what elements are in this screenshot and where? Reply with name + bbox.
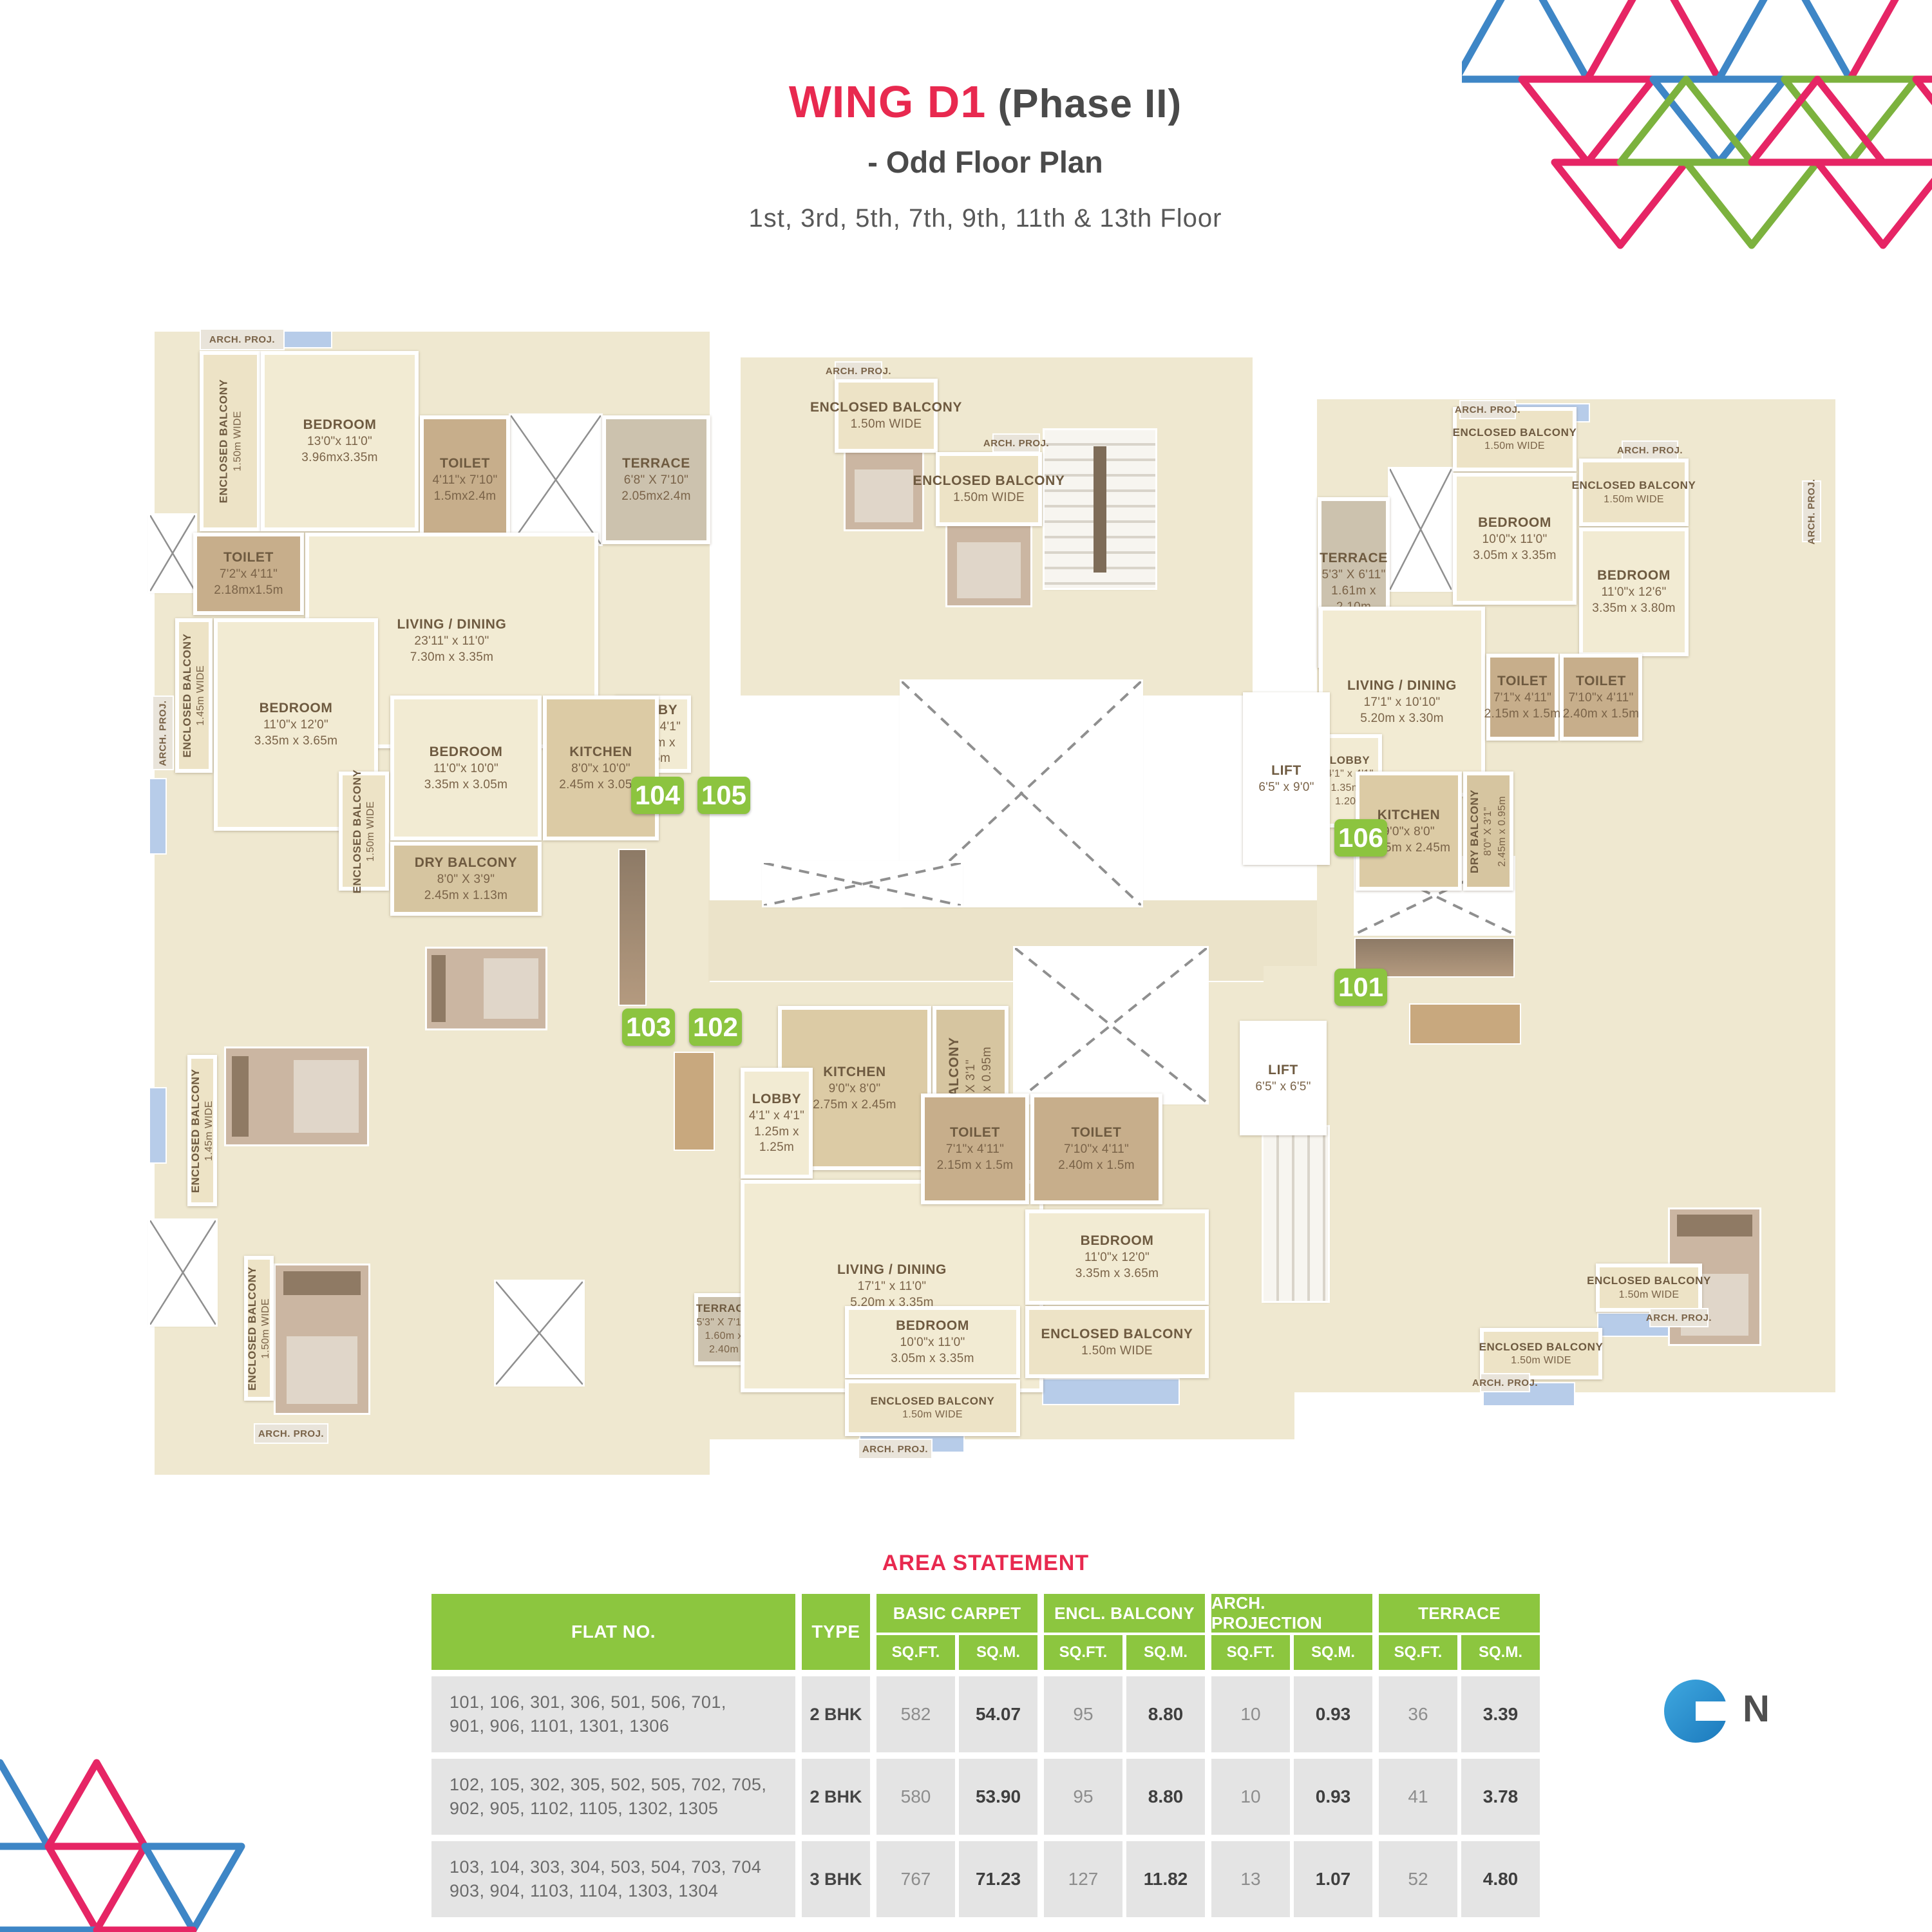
room-label-line: ENCLOSED BALCONY: [217, 379, 230, 504]
room-label-line: 2.05mx2.4m: [621, 489, 691, 504]
room-label-line: TOILET: [223, 550, 274, 565]
arch-projection-label: ARCH. PROJ.: [1617, 445, 1683, 456]
room-label-line: 2.40m: [709, 1344, 739, 1356]
cell-sqft-value: 36: [1379, 1676, 1457, 1752]
cell-pair: 58254.07: [876, 1676, 1037, 1752]
arch-projection-label: ARCH. PROJ.: [983, 438, 1049, 449]
room-label-line: 4'11"x 7'10": [432, 473, 497, 488]
flat-numbers-line: 902, 905, 1102, 1105, 1302, 1305: [450, 1799, 795, 1819]
room-wc-104b: TOILET7'2"x 4'11"2.18mx1.5m: [193, 533, 304, 615]
arch-projection-tag: ARCH. PROJ.: [1803, 482, 1820, 541]
room-label-line: 17'1" x 11'0": [858, 1280, 927, 1294]
room-bed-106a: BEDROOM10'0"x 11'0"3.05m x 3.35m: [1453, 473, 1577, 605]
flat-numbers-line: 903, 904, 1103, 1104, 1303, 1304: [450, 1881, 795, 1901]
table-row: 102, 105, 302, 305, 502, 505, 702, 705,9…: [431, 1759, 1540, 1835]
room-eb-104a: ENCLOSED BALCONY1.50m WIDE: [200, 351, 261, 531]
cell-sqft-value: 582: [876, 1676, 955, 1752]
cell-pair: 131.07: [1211, 1841, 1372, 1917]
room-label-line: 2.75m x 2.45m: [813, 1098, 896, 1112]
arch-projection-label: ARCH. PROJ.: [862, 1444, 928, 1455]
room-eb-101b: ENCLOSED BALCONY1.50m WIDE: [1480, 1328, 1602, 1379]
room-label-line: 1.50m WIDE: [365, 801, 377, 862]
room-label-line: TERRACE: [1320, 551, 1388, 566]
room-label-line: 2.40m x 1.5m: [1058, 1159, 1135, 1173]
room-label-line: 1.60m x: [705, 1331, 743, 1342]
subcol-sqm: SQ.M.: [1126, 1635, 1205, 1670]
flat-badge-101: 101: [1334, 969, 1387, 1006]
room-label-line: TOILET: [1497, 674, 1548, 689]
cell-sqft-value: 580: [876, 1759, 955, 1835]
room-label: ENCLOSED BALCONY1.50m WIDE: [940, 456, 1038, 522]
room-label-line: ENCLOSED BALCONY: [1572, 479, 1696, 492]
room-label: DRY BALCONY8'0" X 3'9"2.45m x 1.13m: [394, 846, 538, 912]
room-label: TOILET4'11"x 7'10"1.5mx2.4m: [424, 419, 506, 540]
room-label-line: 2.15m x 1.5m: [937, 1159, 1014, 1173]
arch-projection-label: ARCH. PROJ.: [158, 700, 169, 766]
flat-badge-102: 102: [689, 1009, 742, 1046]
group-label: TERRACE: [1379, 1594, 1540, 1633]
room-label-line: 1.45m WIDE: [204, 1101, 215, 1161]
shaft-cross-icon: [1390, 469, 1452, 590]
dining-table: [1410, 1005, 1520, 1043]
cell-sqm-value: 1.07: [1294, 1841, 1372, 1917]
cell-pair: 363.39: [1379, 1676, 1540, 1752]
duct-shaft: [1015, 948, 1207, 1103]
room-bed-106b: BEDROOM11'0"x 12'6"3.35m x 3.80m: [1579, 527, 1689, 656]
subcol-sqft: SQ.FT.: [1379, 1635, 1457, 1670]
room-bed-104a: BEDROOM13'0"x 11'0"3.96mx3.35m: [261, 351, 419, 531]
bed-furniture: [274, 1264, 370, 1415]
cell-sqm-value: 3.39: [1461, 1676, 1540, 1752]
room-label-line: LOBBY: [752, 1092, 802, 1107]
room-label-line: BEDROOM: [303, 417, 377, 433]
room-label-line: 9'0"x 8'0": [1383, 825, 1435, 839]
room-label-line: TOILET: [1576, 674, 1626, 689]
room-wc-101a: TOILET7'1"x 4'11"2.15m x 1.5m: [1486, 654, 1558, 741]
room-eb-102b: ENCLOSED BALCONY1.50m WIDE: [845, 1379, 1020, 1436]
room-label-line: ENCLOSED BALCONY: [1479, 1341, 1604, 1354]
room-label-line: 23'11" x 11'0": [414, 634, 489, 649]
room-label-line: TOILET: [440, 456, 490, 471]
arch-projection-tag: ARCH. PROJ.: [994, 435, 1039, 451]
room-label-line: 3.35m x 3.80m: [1592, 601, 1676, 616]
room-label-line: BEDROOM: [1478, 515, 1551, 531]
room-label-line: ENCLOSED BALCONY: [189, 1068, 202, 1193]
room-label-line: KITCHEN: [569, 744, 632, 760]
cell-sqm-value: 53.90: [959, 1759, 1037, 1835]
room-label: ENCLOSED BALCONY1.50m WIDE: [341, 776, 386, 886]
room-label: ENCLOSED BALCONY1.50m WIDE: [247, 1260, 271, 1396]
arch-projection-tag: ARCH. PROJ.: [153, 697, 173, 769]
room-label-line: LOBBY: [1330, 754, 1370, 767]
room-label-line: ENCLOSED BALCONY: [1041, 1327, 1193, 1342]
shaft-cross-icon: [1015, 948, 1207, 1103]
arch-projection-tag: ARCH. PROJ.: [836, 363, 881, 379]
cell-flat-numbers: 103, 104, 303, 304, 503, 504, 703, 70490…: [431, 1841, 795, 1917]
room-label: ENCLOSED BALCONY1.45m WIDE: [190, 1059, 214, 1202]
cell-sqft-value: 127: [1044, 1841, 1122, 1917]
room-label: BEDROOM11'0"x 12'0"3.35m x 3.65m: [1029, 1213, 1205, 1301]
flat-numbers-line: 102, 105, 302, 305, 502, 505, 702, 705,: [450, 1775, 795, 1795]
cell-sqm-value: 4.80: [1461, 1841, 1540, 1917]
cell-sqm-value: 0.93: [1294, 1676, 1372, 1752]
room-label-line: LIVING / DINING: [1347, 678, 1457, 694]
room-label: TOILET7'10"x 4'11"2.40m x 1.5m: [1034, 1097, 1159, 1200]
room-bed-102a: BEDROOM11'0"x 12'0"3.35m x 3.65m: [1025, 1209, 1209, 1305]
room-label-line: 7.30m x 3.35m: [410, 650, 494, 665]
room-label: ENCLOSED BALCONY1.50m WIDE: [1484, 1332, 1598, 1376]
room-label-line: 10'0"x 11'0": [1482, 533, 1547, 547]
room-label-line: 13'0"x 11'0": [307, 435, 372, 449]
bed-furniture: [224, 1046, 369, 1146]
room-label-line: 3.35m x 3.05m: [424, 778, 508, 792]
room-label-line: KITCHEN: [1378, 808, 1441, 823]
bed-blanket: [484, 958, 538, 1019]
shaft-cross-icon: [496, 1282, 583, 1385]
room-label-line: 8'0" X 3'1": [1482, 807, 1494, 856]
room-label-line: ENCLOSED BALCONY: [246, 1266, 259, 1390]
room-label: ENCLOSED BALCONY1.50m WIDE: [838, 383, 934, 449]
cell-sqft-value: 767: [876, 1841, 955, 1917]
col-group-basic-carpet: BASIC CARPET SQ.FT. SQ.M.: [876, 1594, 1037, 1670]
room-label: LIFT6'5" x 6'5": [1244, 1025, 1323, 1132]
bed-furniture: [425, 947, 547, 1030]
room-label-line: 17'1" x 10'10": [1364, 696, 1441, 710]
room-wc-101b: TOILET7'10"x 4'11"2.40m x 1.5m: [1560, 654, 1642, 741]
bed-blanket: [855, 469, 913, 522]
room-label-line: TOILET: [1072, 1125, 1122, 1141]
room-label-line: BEDROOM: [1081, 1233, 1154, 1249]
cell-pair: 413.78: [1379, 1759, 1540, 1835]
arch-projection-label: ARCH. PROJ.: [826, 366, 891, 377]
cell-pair: 100.93: [1211, 1759, 1372, 1835]
room-label-line: 11'0"x 10'0": [433, 762, 498, 776]
arch-projection-tag: ARCH. PROJ.: [1651, 1309, 1707, 1326]
staircase: [1045, 430, 1155, 588]
room-label: BEDROOM13'0"x 11'0"3.96mx3.35m: [265, 355, 415, 527]
room-label-line: 2.15m x 1.5m: [1484, 707, 1561, 721]
duct-shaft: [150, 1220, 216, 1325]
room-label-line: 7'10"x 4'11": [1064, 1142, 1129, 1157]
room-label-line: 1.50m WIDE: [1081, 1344, 1153, 1358]
room-label-line: 2.45m x 3.05m: [559, 778, 643, 792]
room-lift-1: LIFT6'5" x 9'0": [1243, 692, 1330, 865]
cell-flat-numbers: 101, 106, 301, 306, 501, 506, 701,901, 9…: [431, 1676, 795, 1752]
room-label: TOILET7'1"x 4'11"2.15m x 1.5m: [1490, 658, 1555, 737]
north-label: N: [1743, 1687, 1770, 1730]
room-label-line: 11'0"x 12'0": [1084, 1251, 1150, 1265]
room-label-line: BEDROOM: [430, 744, 503, 760]
room-label: TOILET7'1"x 4'11"2.15m x 1.5m: [925, 1097, 1025, 1200]
room-label: ENCLOSED BALCONY1.50m WIDE: [202, 355, 258, 527]
room-dry-104: DRY BALCONY8'0" X 3'9"2.45m x 1.13m: [390, 842, 542, 916]
room-label-line: ENCLOSED BALCONY: [871, 1395, 995, 1408]
cell-sqft-value: 52: [1379, 1841, 1457, 1917]
room-label-line: 7'1"x 4'11": [946, 1142, 1004, 1157]
cell-sqft-value: 95: [1044, 1676, 1122, 1752]
cell-sqft-value: 10: [1211, 1759, 1290, 1835]
room-label-line: 4'1" x 4'1": [749, 1109, 804, 1123]
room-label-line: 1.50m WIDE: [902, 1409, 963, 1421]
arch-projection-label: ARCH. PROJ.: [1646, 1312, 1712, 1323]
bed-headboard: [232, 1056, 249, 1137]
arch-projection-label: ARCH. PROJ.: [1455, 404, 1520, 415]
room-eb-104b: ENCLOSED BALCONY1.45m WIDE: [175, 618, 213, 773]
room-wc-102b: TOILET7'10"x 4'11"2.40m x 1.5m: [1030, 1094, 1162, 1204]
bed-blanket: [957, 542, 1020, 598]
window: [150, 779, 166, 853]
bed-blanket: [287, 1336, 357, 1404]
subcol-sqft: SQ.FT.: [876, 1635, 955, 1670]
room-label-line: ENCLOSED BALCONY: [351, 769, 364, 893]
room-label: TOILET7'10"x 4'11"2.40m x 1.5m: [1564, 658, 1638, 737]
room-kit-104: KITCHEN8'0"x 10'0"2.45m x 3.05m: [543, 696, 659, 840]
arch-projection-tag: ARCH. PROJ.: [255, 1425, 327, 1443]
group-label: ARCH. PROJECTION: [1211, 1594, 1372, 1633]
area-statement-title: AREA STATEMENT: [431, 1551, 1540, 1576]
room-label: ENCLOSED BALCONY1.50m WIDE: [1457, 411, 1573, 468]
room-label-line: 8'0"x 10'0": [571, 762, 630, 776]
room-label-line: ENCLOSED BALCONY: [1453, 426, 1577, 439]
cell-type: 3 BHK: [802, 1841, 870, 1917]
room-label-line: DRY BALCONY: [1468, 789, 1481, 873]
table-row: 103, 104, 303, 304, 503, 504, 703, 70490…: [431, 1841, 1540, 1917]
shaft-cross-icon: [150, 515, 195, 591]
room-dry-101: DRY BALCONY8'0" X 3'1"2.45m x 0.95m: [1463, 772, 1513, 891]
cell-sqft-value: 41: [1379, 1759, 1457, 1835]
room-label-line: 2.45m x 1.13m: [424, 889, 508, 903]
room-label-line: 1.50m WIDE: [232, 411, 243, 471]
room-eb-101a: ENCLOSED BALCONY1.50m WIDE: [1596, 1264, 1702, 1312]
room-label-line: 5.20m x 3.30m: [1360, 712, 1444, 726]
room-label-line: 3.35m x 3.65m: [1075, 1267, 1159, 1281]
room-label: ENCLOSED BALCONY1.50m WIDE: [1600, 1267, 1698, 1308]
table-rows: 101, 106, 301, 306, 501, 506, 701,901, 9…: [431, 1676, 1540, 1917]
room-label-line: LIFT: [1268, 1063, 1298, 1078]
cell-sqft-value: 10: [1211, 1676, 1290, 1752]
room-label-line: 7'10"x 4'11": [1568, 691, 1633, 705]
window: [150, 1088, 166, 1162]
room-label: BEDROOM10'0"x 11'0"3.05m x 3.35m: [1457, 477, 1573, 601]
dining-table: [675, 1053, 714, 1150]
room-lift-2: LIFT6'5" x 6'5": [1240, 1021, 1327, 1135]
cell-pair: 958.80: [1044, 1676, 1205, 1752]
shaft-cross-icon: [764, 863, 961, 905]
col-type: TYPE: [802, 1594, 870, 1670]
room-label-line: 3.05m x 3.35m: [891, 1352, 974, 1366]
cell-sqm-value: 8.80: [1126, 1759, 1205, 1835]
subcol-sqft: SQ.FT.: [1044, 1635, 1122, 1670]
room-label: BEDROOM10'0"x 11'0"3.05m x 3.35m: [849, 1310, 1016, 1374]
cell-sqm-value: 71.23: [959, 1841, 1037, 1917]
room-label: BEDROOM11'0"x 10'0"3.35m x 3.05m: [394, 699, 538, 837]
group-label: ENCL. BALCONY: [1044, 1594, 1205, 1633]
room-label-line: 1.50m WIDE: [1511, 1355, 1571, 1367]
flat-badge-104: 104: [631, 777, 684, 814]
area-statement-table: AREA STATEMENT FLAT NO. TYPE BASIC CARPE…: [431, 1551, 1540, 1917]
room-label-line: 7'1"x 4'11": [1493, 691, 1551, 705]
cell-sqm-value: 8.80: [1126, 1676, 1205, 1752]
col-flat-no: FLAT NO.: [431, 1594, 795, 1670]
room-label-line: 3.35m x 3.65m: [254, 734, 338, 748]
room-label-line: 8'0" X 3'9": [437, 873, 495, 887]
subcol-sqft: SQ.FT.: [1211, 1635, 1290, 1670]
room-label-line: 11'0"x 12'0": [263, 718, 328, 732]
room-label: LIFT6'5" x 9'0": [1247, 696, 1326, 861]
room-label-line: 1.50m WIDE: [260, 1298, 272, 1359]
room-label-line: 6'5" x 9'0": [1258, 781, 1314, 795]
floor-plan: 5'5" WIDE PASSAGE ENCLOSED BALCONY1.50m …: [0, 0, 1932, 1546]
room-label-line: ENCLOSED BALCONY: [1587, 1274, 1711, 1287]
wardrobe: [620, 850, 645, 1005]
flat-badge-106: 106: [1334, 819, 1387, 857]
cell-pair: 524.80: [1379, 1841, 1540, 1917]
room-label-line: ENCLOSED BALCONY: [181, 634, 194, 758]
room-label: TOILET7'2"x 4'11"2.18mx1.5m: [197, 536, 300, 611]
room-label-line: BEDROOM: [260, 701, 333, 716]
room-bed-104c: BEDROOM11'0"x 10'0"3.35m x 3.05m: [390, 696, 542, 840]
room-label-line: 1.25m x: [754, 1125, 799, 1139]
room-label-line: TOILET: [950, 1125, 1000, 1141]
duct-shaft: [764, 863, 961, 905]
flat-numbers-line: 901, 906, 1101, 1301, 1306: [450, 1716, 795, 1736]
room-wc-104a: TOILET4'11"x 7'10"1.5mx2.4m: [420, 415, 510, 544]
cell-type: 2 BHK: [802, 1676, 870, 1752]
room-label: TERRACE6'8" X 7'10"2.05mx2.4m: [606, 419, 706, 540]
room-label-line: 1.25m: [759, 1141, 794, 1155]
room-label: DRY BALCONY8'0" X 3'1"2.45m x 0.95m: [1466, 776, 1511, 886]
cell-sqm-value: 11.82: [1126, 1841, 1205, 1917]
room-label-line: 3.05m x 3.35m: [1473, 549, 1557, 563]
room-label-line: BEDROOM: [1597, 568, 1671, 583]
room-label-line: 1.50m WIDE: [1619, 1289, 1680, 1301]
bed-headboard: [283, 1271, 361, 1295]
duct-shaft: [496, 1282, 583, 1385]
arch-projection-tag: ARCH. PROJ.: [859, 1440, 931, 1458]
triangle-decoration-bottom-left: [0, 1752, 335, 1932]
room-label-line: 5'3" X 6'11": [1322, 568, 1386, 582]
north-compass-notch: [1696, 1701, 1729, 1721]
room-lobby-102: LOBBY4'1" x 4'1"1.25m x1.25m: [741, 1068, 813, 1179]
room-label-line: LIFT: [1271, 763, 1302, 779]
room-eb-104c: ENCLOSED BALCONY1.50m WIDE: [339, 772, 389, 891]
group-label: BASIC CARPET: [876, 1594, 1037, 1633]
col-group-terrace: TERRACE SQ.FT. SQ.M.: [1379, 1594, 1540, 1670]
room-ter-104: TERRACE6'8" X 7'10"2.05mx2.4m: [602, 415, 710, 544]
room-label-line: LIVING / DINING: [397, 617, 506, 632]
bed-blanket: [294, 1060, 359, 1133]
room-label-line: DRY BALCONY: [415, 855, 517, 871]
staircase: [1264, 1127, 1328, 1301]
flat-badge-103: 103: [622, 1009, 675, 1046]
arch-projection-label: ARCH. PROJ.: [1472, 1378, 1538, 1388]
arch-projection-label: ARCH. PROJ.: [258, 1428, 324, 1439]
duct-shaft: [150, 515, 195, 591]
cell-sqm-value: 54.07: [959, 1676, 1037, 1752]
room-label-line: 11'0"x 12'6": [1601, 585, 1666, 600]
room-wc-102a: TOILET7'1"x 4'11"2.15m x 1.5m: [921, 1094, 1029, 1204]
room-label-line: 7'2"x 4'11": [220, 567, 278, 582]
arch-projection-tag: ARCH. PROJ.: [1623, 442, 1677, 459]
arch-projection-label: ARCH. PROJ.: [209, 334, 275, 345]
cell-type: 2 BHK: [802, 1759, 870, 1835]
stair-divider: [1094, 446, 1107, 573]
room-eb-103b: ENCLOSED BALCONY1.50m WIDE: [244, 1256, 274, 1401]
room-label-line: 1.50m WIDE: [1484, 440, 1545, 452]
flat-badge-105: 105: [697, 777, 750, 814]
arch-projection-tag: ARCH. PROJ.: [1481, 1374, 1529, 1391]
subcol-sqm: SQ.M.: [1461, 1635, 1540, 1670]
duct-shaft: [1390, 469, 1452, 590]
arch-projection-tag: ARCH. PROJ.: [1461, 401, 1515, 418]
room-label-line: 6'8" X 7'10": [624, 473, 688, 488]
room-label: ENCLOSED BALCONY1.45m WIDE: [178, 623, 210, 768]
room-label-line: KITCHEN: [823, 1065, 886, 1080]
room-eb-106b: ENCLOSED BALCONY1.50m WIDE: [1579, 459, 1689, 526]
room-label-line: 1.5mx2.4m: [434, 489, 497, 504]
room-label-line: 1.50m WIDE: [851, 417, 922, 431]
room-label-line: 2.45m x 0.95m: [1497, 796, 1508, 867]
subcol-sqm: SQ.M.: [959, 1635, 1037, 1670]
floor-plan-page: WING D1 (Phase II) - Odd Floor Plan 1st,…: [0, 0, 1932, 1932]
cell-flat-numbers: 102, 105, 302, 305, 502, 505, 702, 705,9…: [431, 1759, 795, 1835]
room-eb-105b: ENCLOSED BALCONY1.50m WIDE: [936, 452, 1042, 526]
cell-sqm-value: 0.93: [1294, 1759, 1372, 1835]
cell-pair: 76771.23: [876, 1841, 1037, 1917]
room-label: ENCLOSED BALCONY1.50m WIDE: [1029, 1310, 1205, 1374]
table-row: 101, 106, 301, 306, 501, 506, 701,901, 9…: [431, 1676, 1540, 1752]
room-label-line: 10'0"x 11'0": [900, 1336, 965, 1350]
room-label-line: 1.50m WIDE: [1604, 494, 1664, 506]
cell-sqft-value: 13: [1211, 1841, 1290, 1917]
cell-pair: 958.80: [1044, 1759, 1205, 1835]
shaft-cross-icon: [511, 415, 601, 544]
subcol-sqm: SQ.M.: [1294, 1635, 1372, 1670]
room-label: KITCHEN8'0"x 10'0"2.45m x 3.05m: [547, 699, 655, 837]
bed-headboard: [1677, 1215, 1752, 1236]
room-label-line: 3.96mx3.35m: [301, 451, 377, 465]
room-label-line: 1.45m WIDE: [195, 665, 207, 726]
room-eb-102a: ENCLOSED BALCONY1.50m WIDE: [1025, 1306, 1209, 1378]
flat-numbers-line: 103, 104, 303, 304, 503, 504, 703, 704: [450, 1857, 795, 1877]
shaft-cross-icon: [150, 1220, 216, 1325]
bed-headboard: [431, 955, 446, 1022]
room-bed-102b: BEDROOM10'0"x 11'0"3.05m x 3.35m: [845, 1306, 1020, 1378]
room-label-line: 2.40m x 1.5m: [1563, 707, 1640, 721]
room-label-line: BEDROOM: [896, 1318, 969, 1334]
room-label-line: 1.61m x: [1331, 584, 1376, 598]
col-group-encl-balcony: ENCL. BALCONY SQ.FT. SQ.M.: [1044, 1594, 1205, 1670]
arch-projection-label: ARCH. PROJ.: [1806, 478, 1817, 544]
room-label-line: 2.18mx1.5m: [214, 583, 283, 598]
arch-projection-tag: ARCH. PROJ.: [201, 330, 283, 349]
room-label-line: 1.50m WIDE: [953, 491, 1025, 505]
cell-pair: 100.93: [1211, 1676, 1372, 1752]
room-label: ENCLOSED BALCONY1.50m WIDE: [1583, 462, 1685, 522]
room-label: ENCLOSED BALCONY1.50m WIDE: [849, 1383, 1016, 1432]
room-eb-103a: ENCLOSED BALCONY1.45m WIDE: [187, 1055, 217, 1206]
room-label-line: TERRACE: [622, 456, 690, 471]
cell-sqft-value: 95: [1044, 1759, 1122, 1835]
col-group-arch-projection: ARCH. PROJECTION SQ.FT. SQ.M.: [1211, 1594, 1372, 1670]
cell-sqm-value: 3.78: [1461, 1759, 1540, 1835]
room-label: LOBBY4'1" x 4'1"1.25m x1.25m: [744, 1072, 809, 1175]
room-label: BEDROOM11'0"x 12'6"3.35m x 3.80m: [1583, 531, 1685, 652]
duct-shaft: [511, 415, 601, 544]
table-header: FLAT NO. TYPE BASIC CARPET SQ.FT. SQ.M. …: [431, 1594, 1540, 1670]
room-label-line: 9'0"x 8'0": [829, 1082, 881, 1096]
window: [1043, 1379, 1179, 1404]
